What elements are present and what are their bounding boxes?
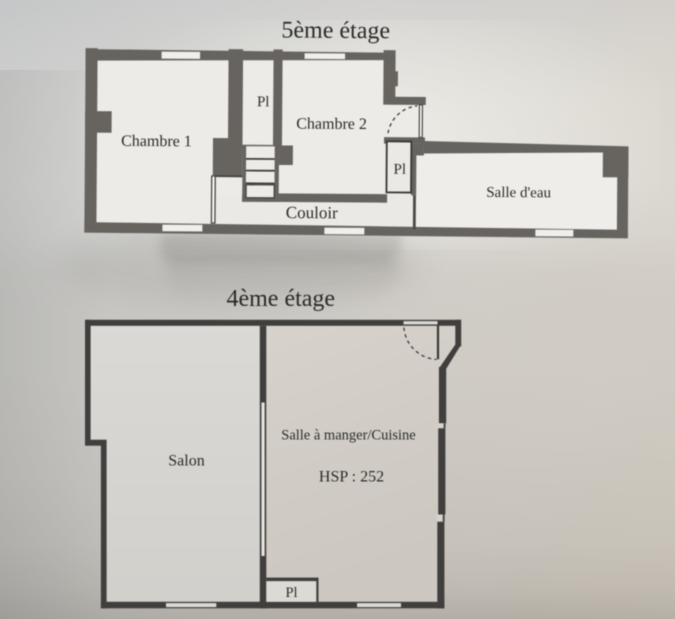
svg-text:Pl: Pl: [393, 162, 406, 178]
svg-text:Pl: Pl: [285, 585, 297, 601]
svg-text:Chambre 2: Chambre 2: [296, 116, 367, 133]
svg-text:HSP : 252: HSP : 252: [319, 469, 384, 486]
svg-text:Couloir: Couloir: [286, 203, 338, 222]
svg-text:5ème étage: 5ème étage: [281, 17, 390, 44]
svg-text:Salon: Salon: [168, 453, 204, 470]
svg-text:Salle d'eau: Salle d'eau: [486, 185, 551, 201]
svg-text:Salle à manger/Cuisine: Salle à manger/Cuisine: [281, 428, 416, 444]
svg-text:4ème étage: 4ème étage: [226, 286, 335, 312]
svg-text:Chambre 1: Chambre 1: [121, 133, 192, 150]
svg-text:Pl: Pl: [257, 94, 270, 110]
